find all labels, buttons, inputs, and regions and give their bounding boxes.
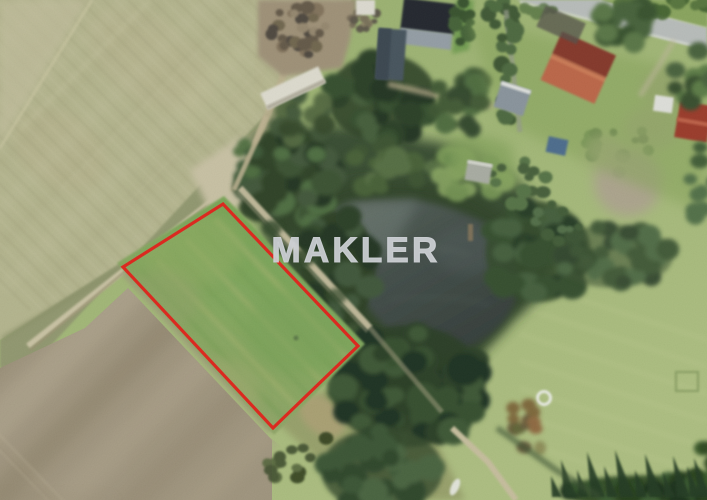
svg-text:MAKLER: MAKLER bbox=[272, 231, 441, 270]
